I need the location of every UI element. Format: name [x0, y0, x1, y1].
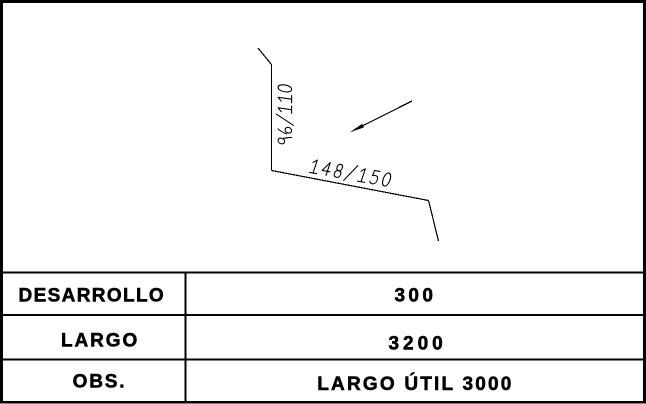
- svg-text:LARGO ÚTIL 3000: LARGO ÚTIL 3000: [317, 373, 513, 395]
- svg-text:LARGO: LARGO: [61, 331, 139, 352]
- svg-text:DESARROLLO: DESARROLLO: [19, 286, 166, 307]
- svg-text:3200: 3200: [388, 334, 446, 355]
- svg-text:300: 300: [394, 286, 436, 307]
- svg-text:OBS.: OBS.: [73, 372, 127, 393]
